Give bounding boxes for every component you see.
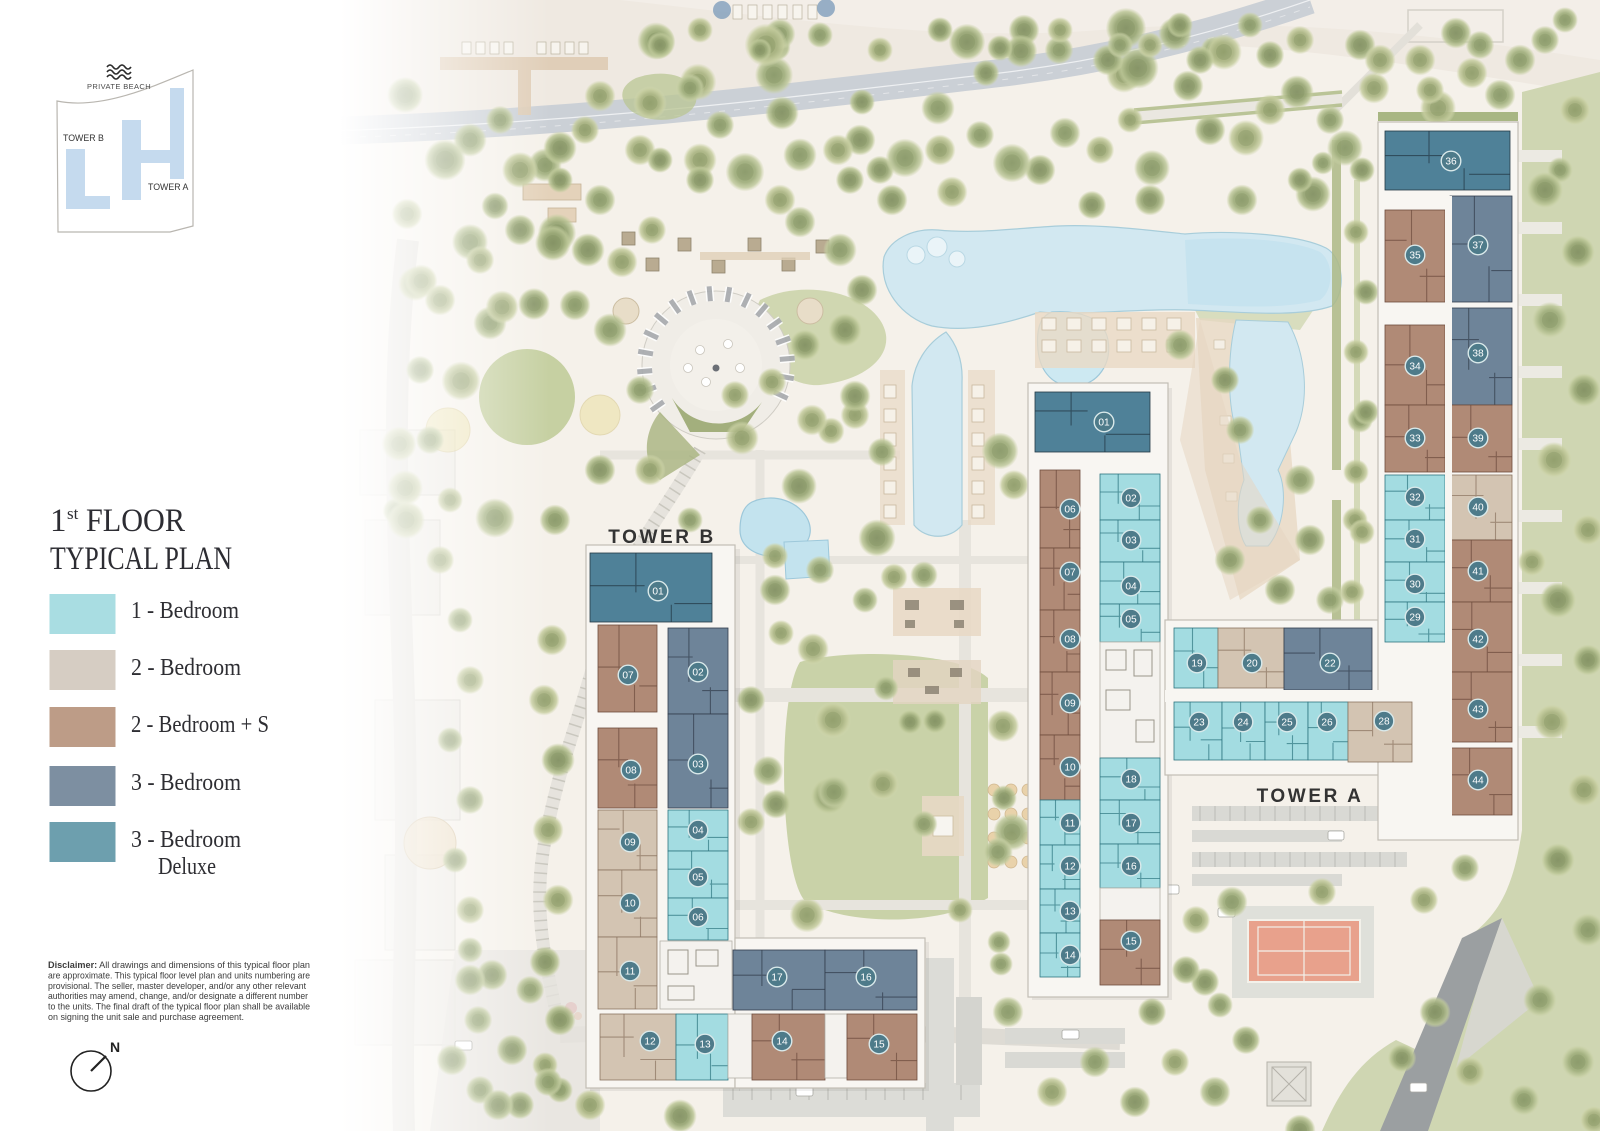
svg-text:14: 14 [1064, 951, 1076, 962]
svg-text:19: 19 [1191, 659, 1203, 670]
svg-text:17: 17 [1125, 819, 1137, 830]
svg-text:04: 04 [1125, 582, 1137, 593]
svg-text:Deluxe: Deluxe [158, 854, 216, 880]
svg-text:10: 10 [1064, 763, 1076, 774]
svg-text:1 - Bedroom: 1 - Bedroom [131, 598, 239, 624]
svg-text:authorities may amend, change,: authorities may amend, change, and/or de… [48, 991, 308, 1002]
svg-text:40: 40 [1472, 503, 1484, 514]
svg-text:11: 11 [625, 967, 636, 978]
svg-text:36: 36 [1445, 157, 1457, 168]
svg-text:43: 43 [1472, 705, 1484, 716]
svg-text:04: 04 [692, 826, 704, 837]
svg-text:16: 16 [1125, 862, 1137, 873]
svg-text:PRIVATE BEACH: PRIVATE BEACH [87, 82, 151, 91]
svg-text:05: 05 [1125, 615, 1137, 626]
svg-text:st: st [67, 504, 79, 523]
svg-text:25: 25 [1281, 718, 1293, 729]
svg-text:39: 39 [1472, 434, 1484, 445]
svg-text:42: 42 [1472, 635, 1484, 646]
svg-text:02: 02 [1125, 494, 1137, 505]
svg-text:3 - Bedroom: 3 - Bedroom [131, 827, 241, 853]
svg-text:FLOOR: FLOOR [86, 503, 185, 539]
svg-text:29: 29 [1409, 613, 1421, 624]
svg-text:06: 06 [692, 913, 704, 924]
svg-text:N: N [110, 1039, 120, 1055]
svg-text:provisional. The seller, maste: provisional. The seller, master develope… [48, 981, 306, 992]
svg-text:07: 07 [1064, 568, 1076, 579]
svg-text:10: 10 [624, 899, 636, 910]
svg-text:18: 18 [1125, 775, 1137, 786]
svg-text:16: 16 [860, 973, 872, 984]
svg-text:41: 41 [1472, 567, 1484, 578]
svg-text:03: 03 [692, 760, 704, 771]
svg-text:on signing the unit sale and p: on signing the unit sale and purchase ag… [48, 1012, 244, 1023]
svg-text:06: 06 [1064, 505, 1076, 516]
svg-text:3 - Bedroom: 3 - Bedroom [131, 770, 241, 796]
svg-text:09: 09 [624, 838, 636, 849]
svg-text:TYPICAL PLAN: TYPICAL PLAN [50, 541, 232, 577]
svg-text:TOWER A: TOWER A [1257, 786, 1364, 807]
svg-text:2 - Bedroom + S: 2 - Bedroom + S [131, 712, 269, 738]
svg-text:2 - Bedroom: 2 - Bedroom [131, 655, 241, 681]
svg-text:24: 24 [1237, 718, 1249, 729]
svg-text:15: 15 [1125, 937, 1137, 948]
svg-text:12: 12 [644, 1037, 656, 1048]
svg-text:1: 1 [50, 503, 67, 539]
svg-text:34: 34 [1409, 362, 1421, 373]
svg-text:32: 32 [1409, 493, 1421, 504]
svg-text:09: 09 [1064, 699, 1076, 710]
svg-text:31: 31 [1409, 535, 1421, 546]
svg-text:26: 26 [1321, 718, 1333, 729]
svg-text:TOWER B: TOWER B [608, 527, 716, 548]
svg-text:12: 12 [1064, 862, 1076, 873]
svg-text:30: 30 [1409, 580, 1421, 591]
svg-text:44: 44 [1472, 776, 1484, 787]
svg-text:08: 08 [625, 766, 637, 777]
svg-text:01: 01 [1098, 418, 1110, 429]
svg-text:23: 23 [1193, 718, 1205, 729]
svg-text:01: 01 [652, 587, 664, 598]
svg-text:38: 38 [1472, 349, 1484, 360]
svg-text:are approximate. This typical: are approximate. This typical floor leve… [48, 970, 310, 981]
svg-text:37: 37 [1472, 241, 1484, 252]
svg-text:08: 08 [1064, 635, 1076, 646]
svg-text:13: 13 [699, 1040, 711, 1051]
svg-text:05: 05 [692, 873, 704, 884]
svg-text:13: 13 [1064, 907, 1076, 918]
svg-text:14: 14 [776, 1037, 788, 1048]
svg-text:28: 28 [1378, 717, 1390, 728]
svg-text:03: 03 [1125, 536, 1137, 547]
svg-text:20: 20 [1246, 659, 1258, 670]
svg-text:TOWER A: TOWER A [148, 182, 189, 192]
svg-text:35: 35 [1409, 251, 1421, 262]
svg-text:33: 33 [1409, 434, 1421, 445]
svg-text:11: 11 [1065, 819, 1076, 830]
svg-text:Disclaimer: All drawings and d: Disclaimer: All drawings and dimensions … [48, 960, 310, 971]
svg-text:22: 22 [1324, 659, 1336, 670]
svg-text:15: 15 [873, 1040, 885, 1051]
svg-text:17: 17 [771, 973, 783, 984]
svg-text:to the units. The final draft: to the units. The final draft of the typ… [48, 1002, 310, 1013]
svg-text:TOWER B: TOWER B [63, 133, 104, 143]
svg-text:07: 07 [622, 671, 634, 682]
svg-text:02: 02 [692, 668, 704, 679]
